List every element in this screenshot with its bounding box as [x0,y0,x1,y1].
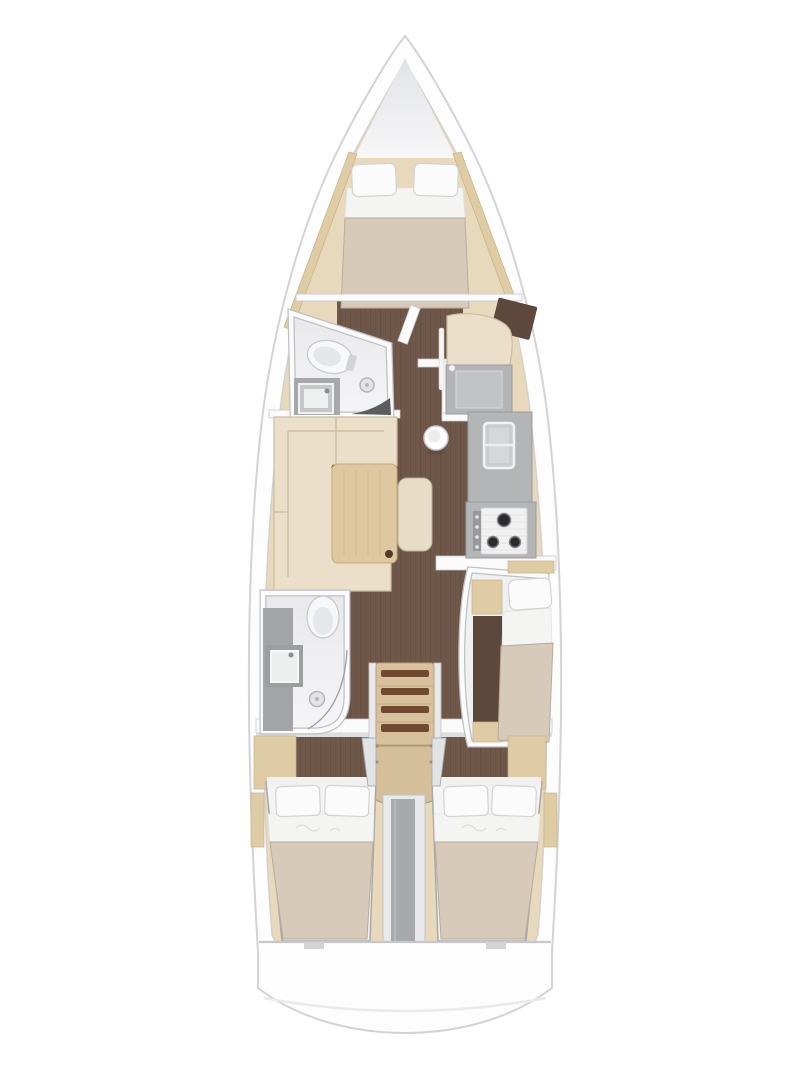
compression-post [424,426,448,456]
fridge-lid [456,371,502,408]
aft-head [263,593,347,731]
faucet-icon [289,653,294,658]
single-berth-pillow [508,578,552,611]
burner-icon [488,537,499,548]
burner-icon [510,537,521,548]
single-berth-sheet [502,608,552,648]
yacht-floor-plan [0,0,810,1080]
companionway [369,663,441,803]
floor-plan-canvas [0,0,810,1080]
side-table [398,478,432,551]
table-leg [385,550,393,558]
engine-compartment [383,795,425,945]
cabin-desk [472,580,502,614]
berth-head-shelf [508,561,554,573]
mast-post [439,328,444,390]
washbasin [271,651,298,682]
faucet-icon [325,389,330,394]
pillow [275,785,320,817]
wardrobe [473,616,502,722]
engine-cover [372,746,438,803]
pillow [443,785,488,817]
vberth-pillow-right [413,163,458,197]
mid-single-cabin [462,561,554,744]
single-berth-mattress [498,643,553,742]
burner-icon [498,514,511,527]
pillow [324,785,369,817]
pillow [491,785,536,817]
saloon-table [332,464,397,563]
vberth-pillow-left [351,163,396,197]
forward-bulkhead [296,294,522,301]
